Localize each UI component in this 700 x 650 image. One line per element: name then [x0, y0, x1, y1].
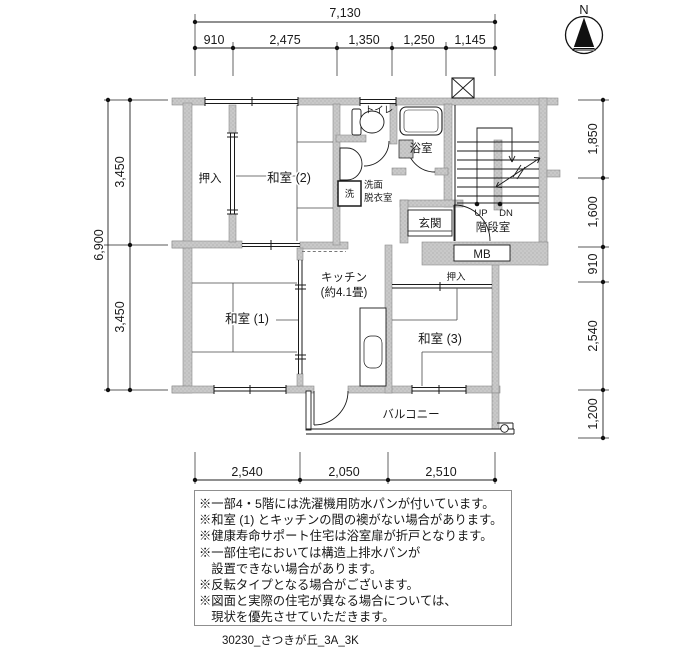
- label-toilet: トイレ: [365, 105, 394, 116]
- dim-right-seg-4: 1,200: [586, 398, 600, 429]
- label-japanese-room-2: 和室 (2): [267, 170, 311, 185]
- north-arrow-icon: N: [566, 2, 603, 54]
- note-line: ※健康寿命サポート住宅は浴室扉が折戸となります。: [199, 528, 507, 544]
- balcony-door: [314, 391, 348, 425]
- dim-top-seg-0: 910: [204, 33, 225, 47]
- label-balcony: バルコニー: [382, 408, 439, 421]
- vent-box-icon: [452, 78, 474, 98]
- label-stair-up: UP: [474, 208, 487, 219]
- note-line: ※一部4・5階には洗濯機用防水パンが付いています。: [199, 496, 507, 512]
- dim-right-seg-3: 2,540: [586, 320, 600, 351]
- label-meter-box: MB: [473, 249, 491, 261]
- notes-box: ※一部4・5階には洗濯機用防水パンが付いています。 ※和室 (1) とキッチンの…: [194, 490, 512, 626]
- label-japanese-room-3: 和室 (3): [418, 331, 462, 346]
- label-bath: 浴室: [410, 141, 433, 155]
- dim-left-seg-0: 3,450: [113, 156, 127, 187]
- label-kitchen-2: (約4.1畳): [321, 285, 368, 299]
- balcony-drain: [501, 425, 509, 433]
- dim-bottom-seg-0: 2,540: [231, 465, 262, 479]
- note-line: 設置できない場合があります。: [199, 561, 507, 577]
- label-stairwell: 階段室: [476, 220, 511, 234]
- note-line: ※図面と実際の住宅が異なる場合については、: [199, 593, 507, 609]
- dim-right-seg-1: 1,600: [586, 196, 600, 227]
- label-washer: 洗: [345, 188, 355, 200]
- stair-symbols: [475, 128, 540, 206]
- note-line: ※反転タイプとなる場合がございます。: [199, 577, 507, 593]
- label-washroom-1: 洗面: [364, 179, 383, 191]
- kitchen-sink: [360, 308, 386, 386]
- toilet-door: [364, 141, 389, 166]
- dim-top-seg-1: 2,475: [269, 33, 300, 47]
- dim-left-total: 6,900: [92, 229, 106, 260]
- plan-id: 30230_さつきが丘_3A_3K: [222, 632, 359, 648]
- dim-bottom-seg-2: 2,510: [425, 465, 456, 479]
- dim-top-seg-4: 1,145: [454, 33, 485, 47]
- dim-bottom-seg-1: 2,050: [328, 465, 359, 479]
- note-line: ※和室 (1) とキッチンの間の襖がない場合があります。: [199, 512, 507, 528]
- dim-top-seg-2: 1,350: [348, 33, 379, 47]
- label-closet-right: 押入: [446, 271, 466, 283]
- north-label: N: [579, 2, 588, 17]
- washbasin: [340, 148, 362, 180]
- label-kitchen-1: キッチン: [321, 271, 367, 284]
- dim-left-seg-1: 3,450: [113, 301, 127, 332]
- dim-right-seg-0: 1,850: [586, 123, 600, 154]
- label-entrance: 玄関: [419, 216, 442, 230]
- note-line: ※一部住宅においては構造上排水パンが: [199, 545, 507, 561]
- label-japanese-room-1: 和室 (1): [225, 311, 269, 326]
- dim-right-seg-2: 910: [586, 254, 600, 275]
- label-stair-down: DN: [499, 208, 513, 219]
- note-line: 現状を優先させていただきます。: [199, 609, 507, 625]
- label-closet-left: 押入: [199, 171, 222, 185]
- dim-top-seg-3: 1,250: [403, 33, 434, 47]
- label-washroom-2: 脱衣室: [364, 192, 393, 204]
- dim-top-total: 7,130: [329, 6, 360, 20]
